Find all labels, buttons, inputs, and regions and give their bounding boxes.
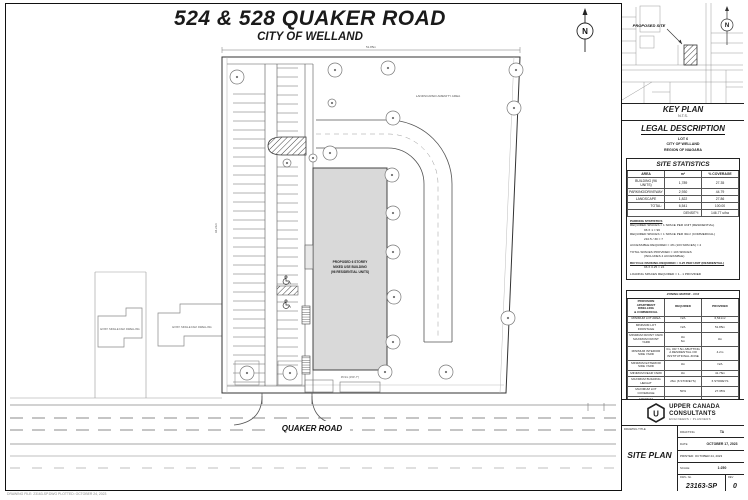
- dwg-number-cell: DWG. No. 23163-SP: [678, 475, 726, 491]
- dwg-number-value: 23163-SP: [678, 483, 725, 490]
- zoning-provided: 51.85m: [702, 323, 739, 333]
- key-plan-title: KEY PLAN: [622, 105, 744, 114]
- zoning-matrix-title: ZONING MATRIX - CC2: [628, 291, 739, 298]
- zoning-provided: 27.35%: [702, 387, 739, 397]
- building-label-2: MIXED USE BUILDING: [333, 265, 367, 269]
- firm-block: U UPPER CANADA CONSULTANTS ENGINEERS / P…: [622, 399, 744, 425]
- firm-tagline: ENGINEERS / PLANNERS: [669, 417, 720, 421]
- legal-description-title: LEGAL DESCRIPTION: [641, 124, 725, 135]
- ucc-logo-letter: U: [653, 409, 659, 418]
- parking-statistics: PARKING STATISTICS REQUIRED SPACES = 1 S…: [627, 217, 739, 279]
- zoning-provided: 3m: [702, 333, 739, 347]
- drawing-title-value: SITE PLAN: [622, 450, 677, 460]
- zoning-provided: 6 STOREYS: [702, 377, 739, 387]
- proposed-site-label: PROPOSED SITE: [633, 23, 666, 28]
- stat-m2: 2,930: [665, 189, 702, 196]
- plot-stamp: DRAWING FILE: 23163-SP.DWG PLOTTED: OCTO…: [7, 492, 106, 496]
- zoning-provision: MAXIMUM BUILDING HEIGHT: [628, 377, 665, 387]
- drawing-sheet-page: { "sheet": { "title_line1": "524 & 528 Q…: [0, 0, 748, 500]
- drafting-row: DRAFTING TA: [678, 426, 744, 438]
- ucc-logo-icon: U: [646, 403, 666, 423]
- stat-cov: 27.35: [702, 178, 739, 189]
- accessible-aisle-hatch: [277, 286, 298, 295]
- amenity-area-label: LANDSCAPED AMENITY AREA: [416, 94, 461, 98]
- building-dimension-text: 45.9m (150'-7"): [341, 375, 359, 379]
- building-label-1: PROPOSED 6 STOREY: [333, 260, 369, 264]
- firm-name-line-2: CONSULTANTS: [669, 411, 720, 418]
- dwg-number-label: DWG. No.: [680, 476, 692, 479]
- date-row: DATE OCTOBER 17, 2023: [678, 438, 744, 450]
- rev-value: 0: [726, 483, 744, 490]
- entrance-canopy-hatch: [268, 137, 306, 155]
- printed-value: PRINTED: OCTOBER 24, 2023: [678, 454, 744, 458]
- title-block: DRAWING TITLE SITE PLAN DRAFTING TA DATE…: [622, 425, 744, 491]
- parking-line: 96 X 0.25 = 24: [630, 265, 736, 269]
- stat-cov: 44.79: [702, 189, 739, 196]
- col-area: AREA: [628, 171, 665, 178]
- density-value: 146.77 u/ha: [702, 209, 739, 216]
- site-entrance: [234, 393, 340, 425]
- table-row: MINIMUM LOT FRONTAGEN/A51.85m: [628, 323, 739, 333]
- col-m2: m²: [665, 171, 702, 178]
- zoning-required: 50%: [665, 387, 702, 397]
- road-label: QUAKER ROAD: [282, 424, 343, 433]
- parking-line: (INCLUDES 4 ACCESSIBLE): [630, 254, 736, 258]
- key-plan-north-letter: N: [725, 23, 729, 29]
- table-row: MINIMUM EXTERIOR SIDE YARD3mN/A: [628, 360, 739, 370]
- table-row: BUILDING (96 UNITS)1,78927.35: [628, 178, 739, 189]
- zoning-required: 26m (6 STOREYS): [665, 377, 702, 387]
- firm-name: UPPER CANADA CONSULTANTS ENGINEERS / PLA…: [669, 404, 720, 421]
- scale-row: SCALE 1:250: [678, 463, 744, 475]
- drawing-title-cell: DRAWING TITLE SITE PLAN: [622, 426, 678, 491]
- col-coverage: % COVERAGE: [702, 171, 739, 178]
- stat-label: LANDSCAPE: [628, 196, 665, 203]
- site-statistics-table: SITE STATISTICS AREA m² % COVERAGE BUILD…: [627, 159, 739, 217]
- zoning-provision: MINIMUM INTERIOR SIDE YARD: [628, 346, 665, 360]
- rev-label: REV: [728, 476, 733, 479]
- density-label: DENSITY:: [628, 209, 702, 216]
- parking-line: 210.5 / 30 = 7: [630, 237, 736, 241]
- zoning-required: N/A: [665, 323, 702, 333]
- zoning-col-provided: PROVIDED: [702, 299, 739, 317]
- side-dimension-text: 94.21m: [214, 223, 218, 234]
- density-row: DENSITY:146.77 u/ha: [628, 209, 739, 216]
- total-label: TOTAL:: [628, 203, 665, 210]
- legal-description: LEGAL DESCRIPTION LOT 6 CITY OF WELLAND …: [622, 121, 744, 155]
- drafting-value: TA: [700, 430, 744, 434]
- drafting-label: DRAFTING: [678, 430, 700, 434]
- key-plan-caption: KEY PLAN N.T.S.: [622, 104, 744, 121]
- stat-label: PARKING/DRIVEWAY: [628, 189, 665, 196]
- zoning-provision: MINIMUM EXTERIOR SIDE YARD: [628, 360, 665, 370]
- dwg-number-row: DWG. No. 23163-SP REV 0: [678, 475, 744, 491]
- table-row: MINIMUM FRONT YARD MAXIMUM FRONT YARD3m …: [628, 333, 739, 347]
- key-plan-map: PROPOSED SITE N: [622, 3, 744, 104]
- table-row: MINIMUM INTERIOR SIDE YARD3m, OR 7.5m AB…: [628, 346, 739, 360]
- drawing-title-label: DRAWING TITLE: [624, 427, 646, 431]
- neighbour-house-label-2: EXIST. SINGLE FAM. DWELLING: [172, 325, 211, 329]
- title-block-panel: PROPOSED SITE N KEY PLAN N.T.S. LEGAL DE…: [621, 3, 744, 491]
- site-statistics-box: SITE STATISTICS AREA m² % COVERAGE BUILD…: [626, 158, 740, 280]
- site-statistics-title: SITE STATISTICS: [628, 159, 739, 171]
- total-coverage: 100.00: [702, 203, 739, 210]
- table-row: LANDSCAPE1,82227.86: [628, 196, 739, 203]
- date-value: OCTOBER 17, 2023: [700, 442, 744, 446]
- zoning-required: 3m: [665, 360, 702, 370]
- building-entry-vestibule: [305, 245, 313, 269]
- printed-row: PRINTED: OCTOBER 24, 2023: [678, 451, 744, 463]
- zoning-required: 3m, OR 7.5m ABUTTING A RESIDENTIAL OR IN…: [665, 346, 702, 360]
- stat-cov: 27.86: [702, 196, 739, 203]
- total-m2: 6,541: [665, 203, 702, 210]
- zoning-provision: MAXIMUM LOT COVERAGE: [628, 387, 665, 397]
- scale-label: SCALE: [678, 466, 700, 470]
- scale-value: 1:250: [700, 466, 744, 470]
- parking-line: ACCESSIBLE REQUIRED = 4% (103 SPACES) = …: [630, 243, 736, 247]
- table-row: MAXIMUM LOT COVERAGE50%27.35%: [628, 387, 739, 397]
- zoning-provision: MINIMUM LOT FRONTAGE: [628, 323, 665, 333]
- neighbour-house-label-1: EXIST. SINGLE FAM. DWELLING: [100, 327, 139, 331]
- rev-cell: REV 0: [726, 475, 744, 491]
- proposed-building: [313, 168, 387, 370]
- building-label-3: (96 RESIDENTIAL UNITS): [331, 270, 369, 274]
- zoning-provided: 4.2m: [702, 346, 739, 360]
- zoning-col-provision: PROVISION APARTMENT DWELLING & COMMERCIA…: [628, 299, 665, 317]
- stat-m2: 1,789: [665, 178, 702, 189]
- north-letter: N: [582, 27, 588, 36]
- bike-rack-1: [302, 306, 310, 324]
- table-row: PARKING/DRIVEWAY2,93044.79: [628, 189, 739, 196]
- key-plan-leader: [667, 29, 682, 44]
- road-lines: [10, 403, 616, 468]
- firm-name-line-1: UPPER CANADA: [669, 404, 720, 411]
- zoning-col-required: REQUIRED: [665, 299, 702, 317]
- stat-label: BUILDING (96 UNITS): [628, 178, 665, 189]
- bike-rack-2: [302, 356, 310, 374]
- date-label: DATE: [678, 442, 700, 446]
- neighbour-lot-lines: [10, 272, 222, 398]
- total-row: TOTAL:6,541100.00: [628, 203, 739, 210]
- key-plan-site-parcel: [684, 45, 697, 65]
- parking-line: LOADING SPACES REQUIRED = 1 - 1 PROVIDED: [630, 272, 736, 276]
- top-dimension-text: 51.85m: [366, 45, 377, 49]
- key-plan-graphic: PROPOSED SITE N: [622, 3, 743, 103]
- legal-line-3: REGION OF NIAGARA: [624, 148, 742, 153]
- key-plan-scale: N.T.S.: [622, 114, 744, 118]
- zoning-provision: MINIMUM FRONT YARD MAXIMUM FRONT YARD: [628, 333, 665, 347]
- table-row: MAXIMUM BUILDING HEIGHT26m (6 STOREYS)6 …: [628, 377, 739, 387]
- zoning-provided: N/A: [702, 360, 739, 370]
- stat-m2: 1,822: [665, 196, 702, 203]
- title-block-rows: DRAFTING TA DATE OCTOBER 17, 2023 PRINTE…: [678, 426, 744, 491]
- zoning-required: 3m 6m: [665, 333, 702, 347]
